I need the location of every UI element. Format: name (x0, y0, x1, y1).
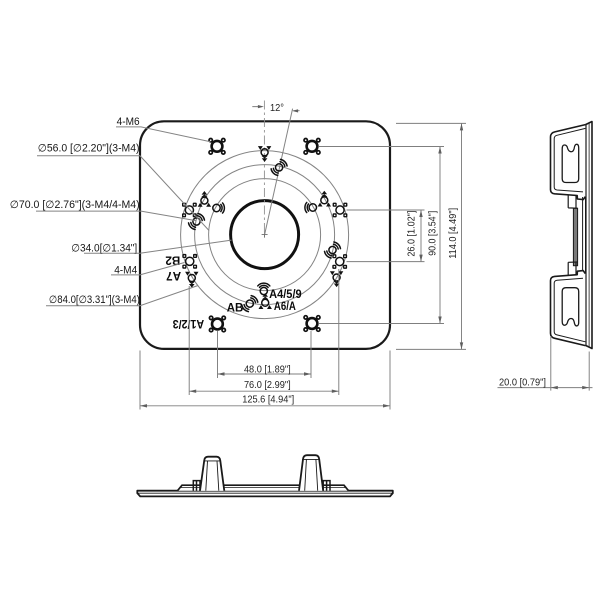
svg-text:12°: 12° (270, 103, 284, 114)
svg-text:48.0 [1.89"]: 48.0 [1.89"] (244, 364, 291, 375)
svg-text:A1/2/3: A1/2/3 (172, 317, 204, 331)
svg-text:125.6 [4.94"]: 125.6 [4.94"] (242, 395, 294, 406)
svg-text:AB: AB (227, 301, 244, 315)
svg-text:∅56.0 [∅2.20"](3-M4): ∅56.0 [∅2.20"](3-M4) (38, 143, 140, 155)
svg-text:20.0 [0.79"]: 20.0 [0.79"] (499, 378, 546, 389)
svg-text:A6/A: A6/A (274, 299, 296, 313)
svg-text:76.0 [2.99"]: 76.0 [2.99"] (244, 380, 291, 391)
svg-text:B2: B2 (165, 253, 180, 267)
svg-text:∅70.0 [∅2.76"](3-M4/4-M4): ∅70.0 [∅2.76"](3-M4/4-M4) (10, 199, 140, 211)
svg-text:A7: A7 (166, 269, 181, 283)
svg-text:90.0 [3.54"]: 90.0 [3.54"] (427, 211, 438, 256)
svg-text:4-M6: 4-M6 (117, 116, 140, 128)
svg-text:∅34.0[∅1.34"]: ∅34.0[∅1.34"] (71, 242, 137, 254)
svg-text:26.0 [1.02"]: 26.0 [1.02"] (407, 210, 418, 256)
svg-text:114.0 [4.49"]: 114.0 [4.49"] (448, 208, 459, 259)
svg-text:∅84.0[∅3.31"](3-M4): ∅84.0[∅3.31"](3-M4) (49, 294, 140, 306)
